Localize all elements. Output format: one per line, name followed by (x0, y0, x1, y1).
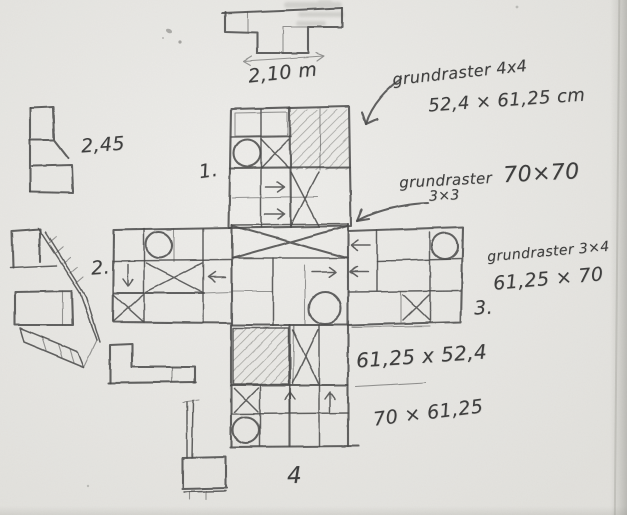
module-2-label: 2. (90, 256, 110, 279)
scanned-sketch-page: 2,10 m 2,45 grundraster 4x4 52,4 × 61,25… (0, 0, 627, 515)
annotation-grundraster-3x3-dims: 70×70 (503, 159, 581, 188)
module-4-label: 4 (287, 463, 303, 490)
annotation-left-dimension: 2,45 (80, 132, 125, 157)
module-3-label: 3. (473, 297, 493, 320)
module-1-label: 1. (198, 159, 220, 183)
annotation-grundraster-3x3-sub: 3×3 (429, 187, 461, 205)
